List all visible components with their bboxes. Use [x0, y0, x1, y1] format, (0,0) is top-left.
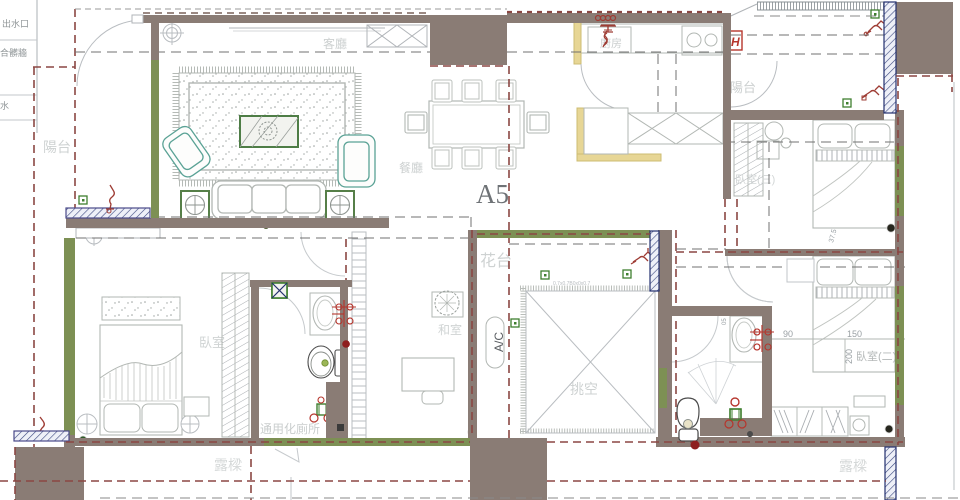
svg-text:200: 200 — [844, 349, 854, 364]
svg-text:露樑: 露樑 — [839, 458, 867, 474]
svg-text:A/C: A/C — [492, 332, 506, 352]
svg-text:客廳: 客廳 — [323, 36, 347, 51]
svg-text:90: 90 — [783, 329, 793, 339]
svg-text:和室: 和室 — [438, 322, 462, 337]
svg-text:0.7x0.7B0x0x0.7: 0.7x0.7B0x0x0.7 — [553, 281, 590, 287]
svg-text:花台: 花台 — [480, 252, 512, 270]
svg-text:陽台: 陽台 — [730, 80, 756, 95]
svg-text:150: 150 — [847, 329, 862, 339]
svg-text:陽台: 陽台 — [43, 139, 71, 155]
svg-text:臥室: 臥室 — [199, 335, 225, 350]
svg-text:水: 水 — [0, 100, 9, 111]
svg-text:通用化廁所: 通用化廁所 — [260, 421, 320, 436]
svg-text:廚房: 廚房 — [600, 36, 622, 50]
svg-text:A5: A5 — [476, 179, 509, 209]
svg-text:露樑: 露樑 — [214, 457, 242, 473]
svg-text:05: 05 — [722, 318, 728, 325]
svg-text:餐廳: 餐廳 — [399, 160, 423, 175]
svg-text:H: H — [731, 35, 740, 49]
svg-text:挑空: 挑空 — [570, 381, 598, 397]
svg-text:臥室(二): 臥室(二) — [856, 349, 896, 363]
svg-text:出水口: 出水口 — [2, 18, 29, 29]
svg-text:合髒牆: 合髒牆 — [0, 47, 27, 58]
